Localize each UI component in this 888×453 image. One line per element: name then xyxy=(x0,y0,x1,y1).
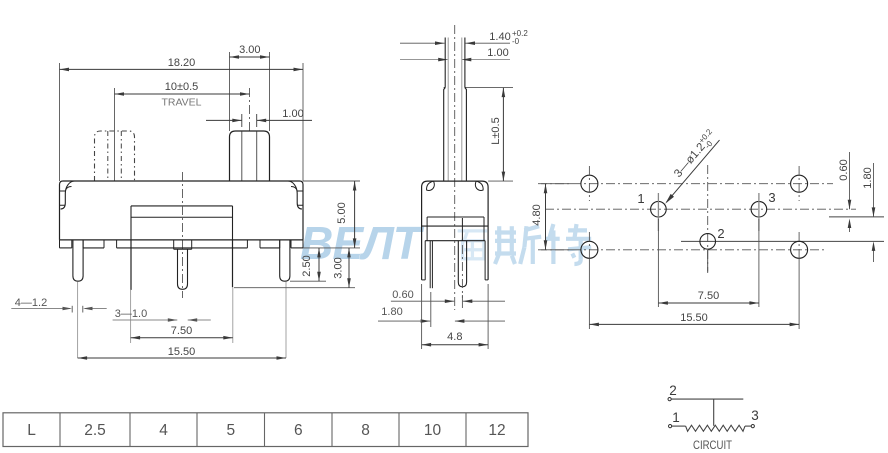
svg-text:10: 10 xyxy=(424,422,442,439)
svg-text:7.50: 7.50 xyxy=(698,290,719,302)
svg-text:3.00: 3.00 xyxy=(333,257,345,278)
svg-text:12: 12 xyxy=(488,422,505,439)
svg-text:1.80: 1.80 xyxy=(862,167,874,188)
svg-text:8: 8 xyxy=(361,422,370,439)
svg-text:15.50: 15.50 xyxy=(168,346,196,358)
svg-text:2: 2 xyxy=(669,383,677,398)
svg-text:7.50: 7.50 xyxy=(171,325,192,337)
svg-text:4—1.2: 4—1.2 xyxy=(15,297,47,309)
svg-text:2: 2 xyxy=(717,226,724,241)
svg-text:4.8: 4.8 xyxy=(447,331,462,343)
svg-text:3: 3 xyxy=(768,190,775,205)
svg-text:1.80: 1.80 xyxy=(381,306,402,318)
svg-text:6: 6 xyxy=(294,422,303,439)
svg-text:2.50: 2.50 xyxy=(301,255,313,276)
svg-text:L: L xyxy=(27,422,36,439)
svg-text:1: 1 xyxy=(637,191,644,206)
svg-text:0.60: 0.60 xyxy=(838,159,850,180)
svg-text:15.50: 15.50 xyxy=(680,312,708,324)
svg-text:1.40: 1.40 xyxy=(489,31,510,43)
svg-text:5.00: 5.00 xyxy=(336,202,348,223)
svg-text:2.5: 2.5 xyxy=(84,422,106,439)
svg-text:1.00: 1.00 xyxy=(487,47,508,59)
svg-text:1: 1 xyxy=(672,410,680,425)
svg-text:18.20: 18.20 xyxy=(168,57,196,69)
svg-text:0.60: 0.60 xyxy=(392,289,413,301)
svg-text:1.00: 1.00 xyxy=(282,108,303,120)
svg-text:4.80: 4.80 xyxy=(531,204,543,225)
svg-text:L±0.5: L±0.5 xyxy=(490,117,502,144)
svg-text:4: 4 xyxy=(159,422,168,439)
svg-text:5: 5 xyxy=(226,422,235,439)
svg-text:3: 3 xyxy=(751,408,759,423)
svg-text:TRAVEL: TRAVEL xyxy=(161,97,201,109)
svg-text:CIRCUIT: CIRCUIT xyxy=(693,440,732,452)
svg-text:3—1.0: 3—1.0 xyxy=(115,308,147,320)
svg-text:3.00: 3.00 xyxy=(239,44,260,56)
svg-text:10±0.5: 10±0.5 xyxy=(165,81,199,93)
svg-text:-0: -0 xyxy=(512,37,520,46)
